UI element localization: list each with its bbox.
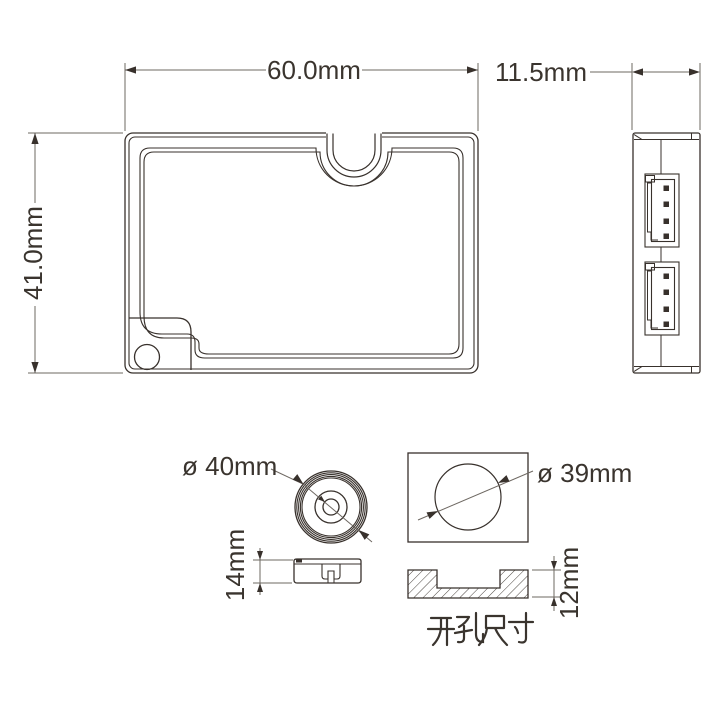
connector-top-pins — [664, 186, 670, 240]
mounting-tab — [129, 318, 191, 370]
cutout-caption: 开孔尺寸 — [419, 613, 543, 649]
side-view — [633, 133, 700, 373]
connector-bottom-pins — [664, 274, 670, 328]
front-view — [125, 126, 478, 373]
arrow-left — [632, 68, 643, 75]
connector-bottom — [645, 262, 679, 335]
dim-cutout-diameter: ø 39mm — [418, 458, 632, 520]
arrow-up — [31, 133, 38, 144]
arrow-up-to-bottom — [257, 583, 263, 592]
side-outline — [633, 133, 700, 373]
knob-height-label: 14mm — [220, 529, 250, 601]
dim-depth-11-5mm: 11.5mm — [495, 57, 700, 130]
inner-wall-inner-line — [144, 152, 459, 354]
arrow-right — [467, 66, 478, 73]
dim-width-60mm: 60.0mm — [125, 55, 478, 131]
cutout-panel — [408, 453, 528, 542]
cutout-section-view — [408, 570, 528, 598]
enclosure-outline — [125, 133, 478, 373]
dimension-drawing: 60.0mm 41.0mm — [0, 0, 720, 716]
dim-cutout-depth-12mm: 12mm — [532, 547, 584, 619]
arrow-left — [125, 66, 136, 73]
connector-top — [645, 174, 679, 247]
knob-clip — [322, 564, 340, 579]
arrow-down-to-top — [257, 551, 263, 560]
side-depth-label: 11.5mm — [495, 57, 587, 87]
cutout-hole-circle — [435, 464, 501, 530]
arrow-down — [31, 362, 38, 373]
side-lid-seams — [634, 133, 699, 373]
cutout-diameter-label: ø 39mm — [537, 458, 632, 488]
mounting-hole — [135, 345, 160, 370]
cutout-top-view — [408, 453, 528, 542]
front-height-label: 41.0mm — [18, 206, 48, 300]
inner-wall-outer-line — [140, 148, 463, 358]
front-width-label: 60.0mm — [267, 55, 361, 85]
knob-diameter-label: ø 40mm — [182, 451, 277, 481]
technical-drawing-page: 60.0mm 41.0mm — [0, 0, 720, 716]
dim-height-41mm: 41.0mm — [18, 133, 123, 373]
dim-knob-height-14mm: 14mm — [220, 529, 293, 601]
arrow-right — [689, 68, 700, 75]
knob-index-mark — [296, 560, 302, 563]
cutout-depth-label: 12mm — [554, 547, 584, 619]
section-hatched-body — [408, 570, 528, 598]
knob-side-view — [294, 559, 361, 583]
